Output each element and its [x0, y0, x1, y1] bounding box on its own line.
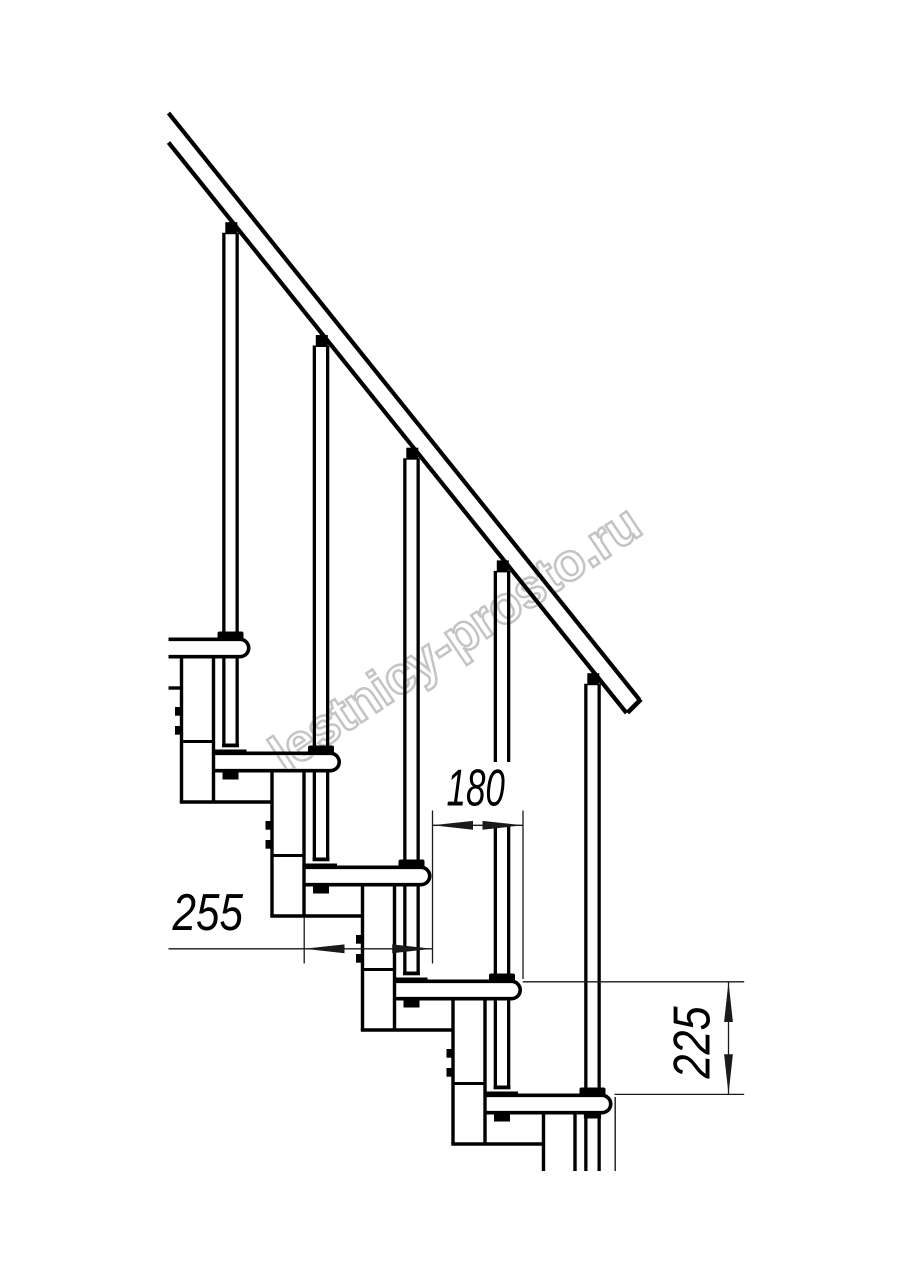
svg-text:225: 225	[664, 1006, 721, 1080]
svg-text:180: 180	[447, 760, 506, 817]
svg-text:255: 255	[172, 883, 244, 941]
